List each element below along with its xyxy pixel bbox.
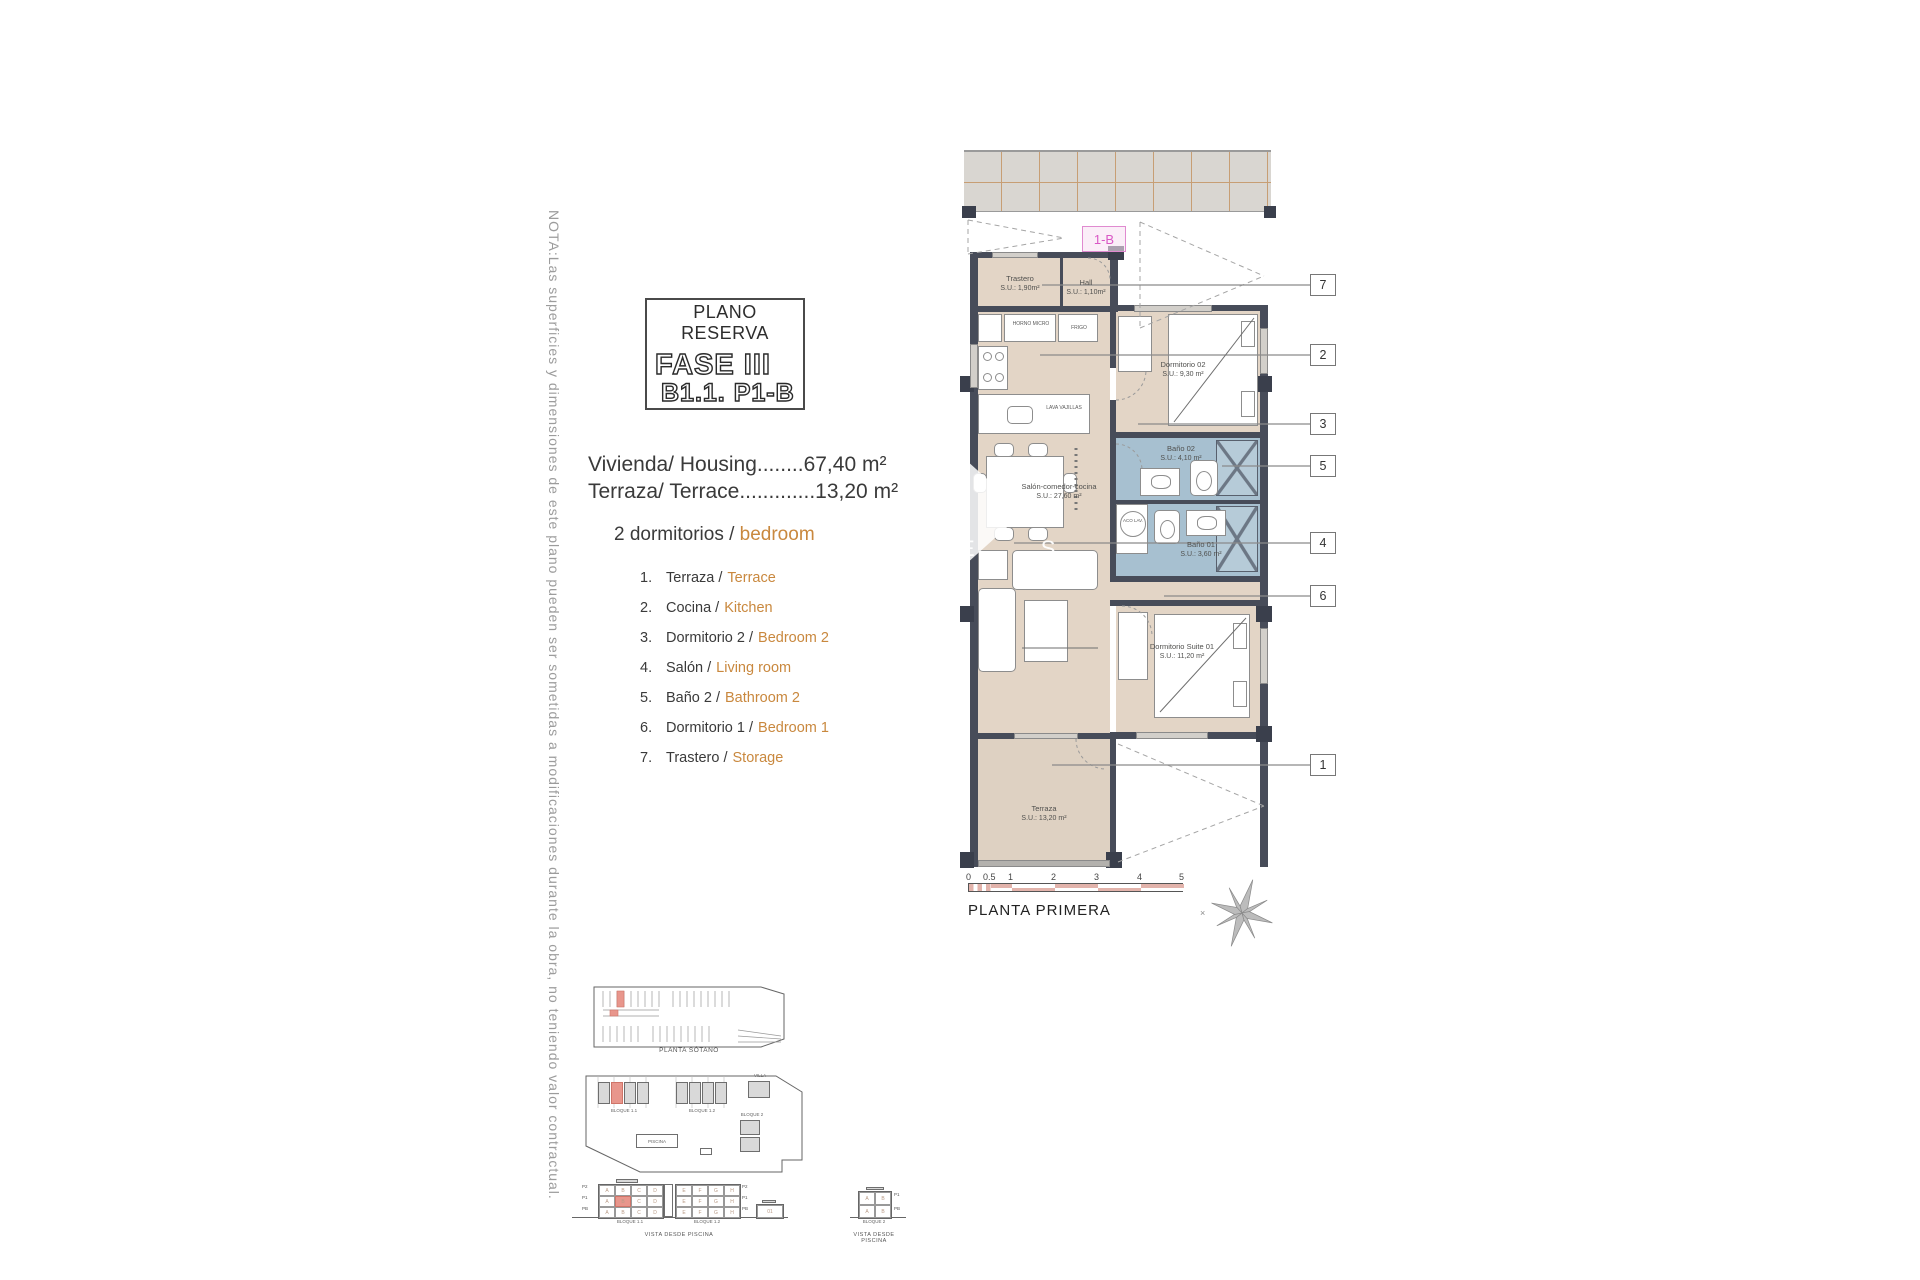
parking-caption: PLANTA SÓTANO	[633, 1047, 745, 1054]
label-dorm2: Dormitorio 02S.U.: 9,30 m²	[1138, 360, 1228, 379]
callout-5: 5	[1310, 455, 1336, 477]
site-villa-label: VILLA	[746, 1073, 774, 1078]
legend-item: 2.Cocina /Kitchen	[640, 600, 829, 630]
elevation-caption: VISTA DESDE PISCINA	[604, 1232, 754, 1238]
unit-code-label: B1.1. P1-B	[661, 380, 797, 406]
label-salon: Salón-comedor-cocinaS.U.: 27,60 m²	[1012, 482, 1106, 501]
mini-site-plan: BLOQUE 1.1 BLOQUE 1.2 VILLA BLOQUE 2 PIS…	[578, 1068, 804, 1186]
legend-item: 3.Dormitorio 2 /Bedroom 2	[640, 630, 829, 660]
floor-name: PLANTA PRIMERA	[968, 902, 1111, 919]
callout-1: 1	[1310, 754, 1336, 776]
floorplan-sheet: NOTA:Las superficies y dimensiones de es…	[0, 0, 1920, 1280]
terrace-area-line: Terraza/ Terrace.............13,20 m²	[588, 479, 898, 506]
label-suite: Dormitorio Suite 01S.U.: 11,20 m²	[1126, 642, 1238, 661]
site-bloque2-label: BLOQUE 2	[734, 1112, 770, 1117]
callout-7: 7	[1310, 274, 1336, 296]
callout-4: 4	[1310, 532, 1336, 554]
callout-3: 3	[1310, 413, 1336, 435]
bedrooms-heading: 2 dormitorios / bedroom	[614, 524, 815, 546]
area-summary: Vivienda/ Housing........67,40 m² Terraz…	[588, 452, 898, 506]
svg-text:×: ×	[1200, 908, 1205, 918]
highlighted-elevation-cell: B	[615, 1196, 631, 1207]
disclaimer-note: NOTA:Las superficies y dimensiones de es…	[546, 210, 562, 1110]
compass-rose-icon: ×	[1198, 876, 1278, 950]
label-bano2: Baño 02S.U.: 4,10 m²	[1146, 444, 1216, 463]
bedrooms-en: bedroom	[740, 524, 815, 545]
stairwell	[664, 1184, 673, 1217]
mini-parking-plan: PLANTA SÓTANO	[593, 986, 785, 1056]
scale-bar-strip	[968, 883, 1183, 892]
elevation-caption-2: VISTA DESDE PISCINA	[840, 1232, 908, 1244]
watermark-text: E S	[960, 536, 1085, 562]
label-trastero: TrasteroS.U.: 1,90m²	[984, 274, 1056, 293]
piscina-outline: PISCINA	[636, 1134, 678, 1148]
housing-area-line: Vivienda/ Housing........67,40 m²	[588, 452, 898, 479]
floor-plan: HORNO MICRO FRIGO LAVA VAJILLAS	[958, 148, 1358, 948]
elevation-bloque12: EFGH EFGH EFGH	[675, 1184, 741, 1219]
scale-bar: 0 0.5 1 2 3 4 5	[968, 872, 1183, 900]
label-bano1: Baño 01S.U.: 3,60 m²	[1166, 540, 1236, 559]
legend-item: 5.Baño 2 /Bathroom 2	[640, 690, 829, 720]
legend-item: 6.Dormitorio 1 /Bedroom 1	[640, 720, 829, 750]
label-terraza: TerrazaS.U.: 13,20 m²	[1008, 804, 1080, 823]
legend-item: 1.Terraza /Terrace	[640, 570, 829, 600]
room-legend: 1.Terraza /Terrace 2.Cocina /Kitchen 3.D…	[640, 570, 829, 780]
elevation-bloque2-label: BLOQUE 2	[854, 1219, 894, 1224]
legend-item: 7.Trastero /Storage	[640, 750, 829, 780]
label-hall: HallS.U.: 1,10m²	[1062, 278, 1110, 297]
elevation-villa: 01	[756, 1204, 784, 1219]
highlighted-unit	[611, 1082, 623, 1104]
callout-6: 6	[1310, 585, 1336, 607]
site-bloque12-label: BLOQUE 1.2	[670, 1108, 734, 1113]
callout-2: 2	[1310, 344, 1336, 366]
elevation-bloque11-label: BLOQUE 1.1	[598, 1219, 662, 1224]
plan-title: PLANO RESERVA	[653, 302, 797, 344]
elevation-bloque2: AB AB	[858, 1191, 892, 1219]
site-piscina-label: PISCINA	[648, 1139, 666, 1144]
site-bloque11-label: BLOQUE 1.1	[592, 1108, 656, 1113]
elevation-views: P2 P1 PB ABCD ABCD ABCD EFGH EFGH EFGH P…	[558, 1182, 938, 1250]
elevation-bloque12-label: BLOQUE 1.2	[675, 1219, 739, 1224]
phase-label: FASE III	[655, 350, 797, 380]
title-box: PLANO RESERVA FASE III B1.1. P1-B	[645, 298, 805, 410]
bedrooms-es: 2 dormitorios /	[614, 524, 734, 545]
unit-tag: 1-B	[1082, 226, 1126, 252]
elevation-bloque11: ABCD ABCD ABCD	[598, 1184, 664, 1219]
legend-item: 4.Salón /Living room	[640, 660, 829, 690]
